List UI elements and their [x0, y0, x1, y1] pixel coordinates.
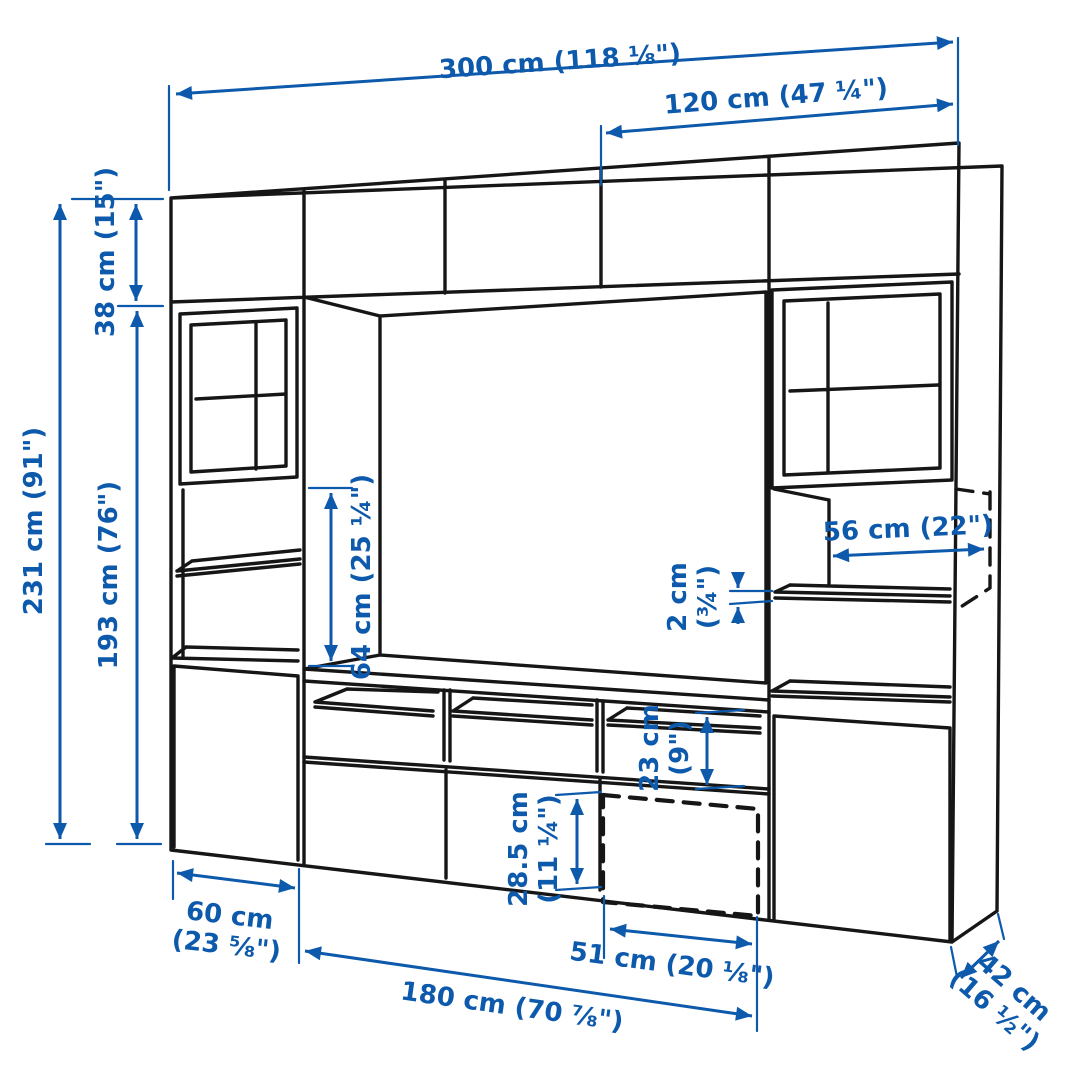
dim-total-height-label: 231 cm (91") [19, 427, 49, 615]
right-column [772, 282, 952, 940]
arrow-drawer-width [610, 929, 752, 944]
dim-drawer-front-height-line2: (11 ¼") [534, 791, 564, 907]
dim-tv-space-height-label: 64 cm (25 ¼") [347, 474, 377, 680]
dim-compartment-height-line2: (9") [665, 704, 695, 792]
dim-left-cabinet-width-label: 60 cm (23 ⅝") [170, 895, 286, 967]
dimension-diagram: 300 cm (118 ⅛") 120 cm (47 ¼") 38 cm (15… [0, 0, 1080, 1080]
dim-shelf-thickness-label: 2 cm (¾") [663, 562, 723, 632]
left-open-shelves [172, 490, 300, 860]
dim-shelf-thickness-line1: 2 cm [663, 562, 693, 632]
arrow-left-cabinet-width [177, 873, 295, 888]
dim-top-row-height-label: 38 cm (15") [91, 167, 121, 337]
arrow-interior-depth [833, 549, 984, 556]
dim-shelf-thickness-line2: (¾") [693, 562, 723, 632]
dim-drawer-front-height-label: 28.5 cm (11 ¼") [504, 791, 564, 907]
left-glass-door [180, 308, 297, 484]
dim-lower-height-label: 193 cm (76") [94, 481, 124, 669]
dashed-door-outline [603, 795, 758, 916]
dim-compartment-height-label: 23 cm (9") [635, 704, 695, 792]
dim-drawer-front-height-line1: 28.5 cm [504, 791, 534, 907]
dim-compartment-height-line1: 23 cm [635, 704, 665, 792]
